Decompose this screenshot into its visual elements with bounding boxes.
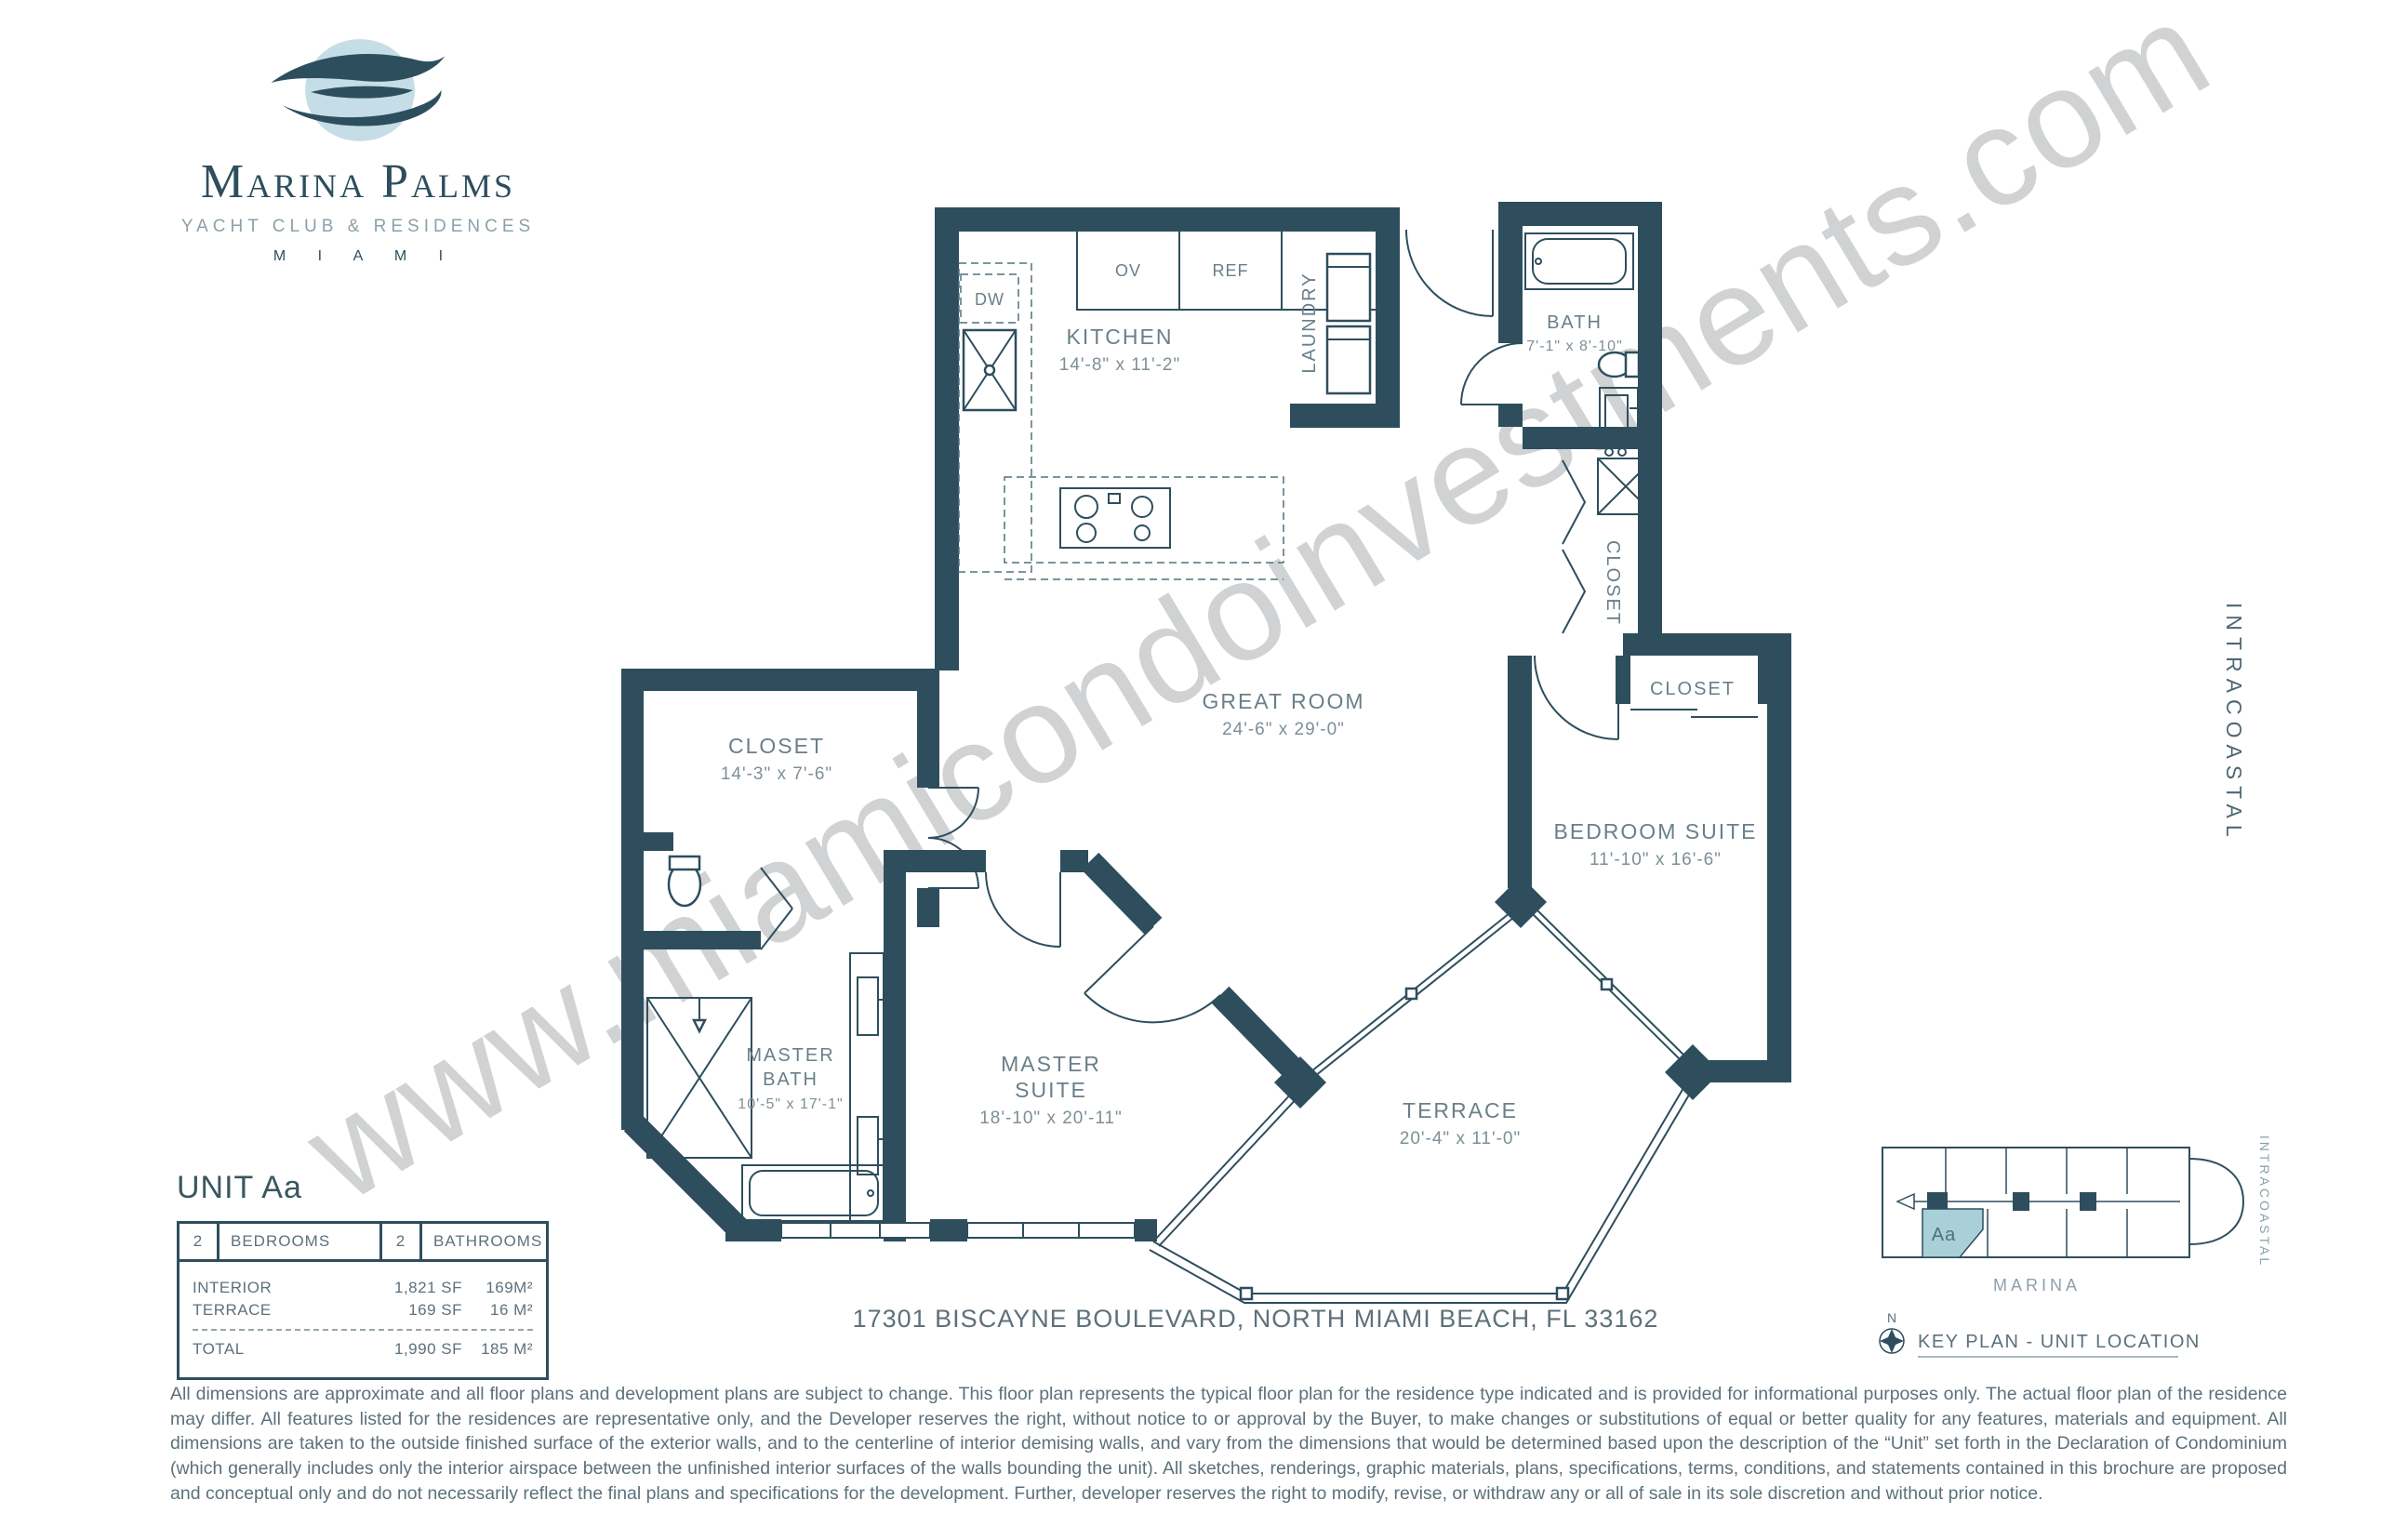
total-sf: 1,990 SF	[373, 1340, 462, 1359]
master-toilet	[669, 856, 700, 906]
kitchen-label: KITCHEN	[1067, 325, 1174, 349]
washer	[1327, 254, 1370, 321]
bedrooms-count: 2	[180, 1224, 219, 1259]
toilet	[1599, 352, 1639, 377]
shower	[647, 998, 752, 1158]
disclaimer-text: All dimensions are approximate and all f…	[170, 1382, 2287, 1507]
window-band	[967, 1223, 1135, 1238]
area-m2: 16 M²	[462, 1301, 533, 1320]
unit-table-body: INTERIOR 1,821 SF 169M² TERRACE 169 SF 1…	[180, 1262, 546, 1377]
total-label: TOTAL	[193, 1340, 373, 1359]
windows-and-railings	[781, 909, 1700, 1303]
laundry-fixtures	[1327, 254, 1370, 393]
dryer	[1327, 326, 1370, 393]
bedroom-closet-label: CLOSET	[1650, 679, 1736, 699]
area-sf: 1,821 SF	[373, 1279, 462, 1297]
kitchen-island	[1004, 477, 1284, 579]
terrace-label: TERRACE	[1403, 1098, 1518, 1122]
keyplan-intracoastal-label: INTRACOASTAL	[2257, 1136, 2272, 1268]
master-closet-dims: 14'-3" x 7'-6"	[721, 764, 832, 784]
area-m2: 169M²	[462, 1279, 533, 1297]
compass-icon: N	[1880, 1310, 1904, 1353]
area-label: TERRACE	[193, 1301, 373, 1320]
refrigerator-label: REF	[1213, 261, 1249, 280]
brand-logo: Marina Palms YACHT CLUB & RESIDENCES M I…	[140, 33, 577, 265]
master-bath-label-2: BATH	[763, 1069, 818, 1090]
marina-label: MARINA	[1993, 1276, 2081, 1294]
table-row: INTERIOR 1,821 SF 169M²	[193, 1279, 533, 1297]
intracoastal-label: INTRACOASTAL	[2221, 603, 2246, 900]
unit-table-header: 2 BEDROOMS 2 BATHROOMS	[180, 1224, 546, 1262]
area-sf: 169 SF	[373, 1301, 462, 1320]
terrace-dims: 20'-4" x 11'-0"	[1400, 1129, 1521, 1148]
total-m2: 185 M²	[462, 1340, 533, 1359]
unit-title: UNIT Aa	[177, 1170, 549, 1206]
keyplan-building: Aa	[1882, 1148, 2243, 1257]
compass-north-label: N	[1887, 1310, 1896, 1325]
brand-name: Marina Palms	[140, 154, 577, 209]
bedroom-suite-label: BEDROOM SUITE	[1554, 819, 1758, 843]
master-bath-dims: 10'-5" x 17'-1"	[738, 1096, 843, 1112]
bath-label: BATH	[1547, 312, 1603, 333]
bedrooms-label: BEDROOMS	[219, 1224, 382, 1259]
unit-aa-label: Aa	[1932, 1225, 1956, 1245]
bedroom-suite-dims: 11'-10" x 16'-6"	[1590, 850, 1722, 870]
master-suite-label-2: SUITE	[1015, 1078, 1087, 1102]
keyplan-title: KEY PLAN - UNIT LOCATION	[1918, 1332, 2201, 1352]
yacht-logo-icon	[251, 33, 465, 153]
master-suite-label-1: MASTER	[1001, 1052, 1101, 1076]
kitchen-sink	[964, 330, 1016, 410]
brand-city: M I A M I	[140, 248, 577, 265]
unit-table: 2 BEDROOMS 2 BATHROOMS INTERIOR 1,821 SF…	[177, 1221, 549, 1380]
area-label: INTERIOR	[193, 1279, 373, 1297]
table-divider	[193, 1329, 533, 1331]
bathtub	[1525, 233, 1633, 289]
unit-info: UNIT Aa 2 BEDROOMS 2 BATHROOMS INTERIOR …	[177, 1170, 549, 1380]
bath-dims: 7'-1" x 8'-10"	[1526, 339, 1623, 354]
great-room-dims: 24'-6" x 29'-0"	[1222, 720, 1345, 739]
master-bath-label-1: MASTER	[746, 1045, 834, 1066]
oven-label: OV	[1115, 261, 1141, 280]
key-plan: Aa MARINA INTRACOASTAL N KEY PLAN - UNIT…	[1871, 1136, 2281, 1371]
master-suite-dims: 18'-10" x 20'-11"	[979, 1109, 1123, 1128]
counter-dashed	[959, 263, 1031, 572]
kitchen-dims: 14'-8" x 11'-2"	[1059, 355, 1180, 375]
laundry-label: LAUNDRY	[1299, 272, 1320, 373]
table-row-total: TOTAL 1,990 SF 185 M²	[193, 1340, 533, 1359]
floor-plan: KITCHEN 14'-8" x 11'-2" LAUNDRY BATH 7'-…	[595, 181, 1953, 1353]
bathrooms-label: BATHROOMS	[422, 1224, 546, 1259]
master-closet-label: CLOSET	[728, 734, 825, 758]
dishwasher-label: DW	[975, 290, 1004, 309]
bath-fixtures	[1525, 233, 1654, 514]
window-band	[781, 1223, 930, 1238]
cooktop	[1060, 488, 1170, 548]
property-address: 17301 BISCAYNE BOULEVARD, NORTH MIAMI BE…	[614, 1305, 1897, 1334]
bathrooms-count: 2	[382, 1224, 422, 1259]
great-room-label: GREAT ROOM	[1202, 689, 1364, 713]
hall-closet-label: CLOSET	[1603, 540, 1623, 626]
table-row: TERRACE 169 SF 16 M²	[193, 1301, 533, 1320]
brand-tagline: YACHT CLUB & RESIDENCES	[140, 217, 577, 237]
